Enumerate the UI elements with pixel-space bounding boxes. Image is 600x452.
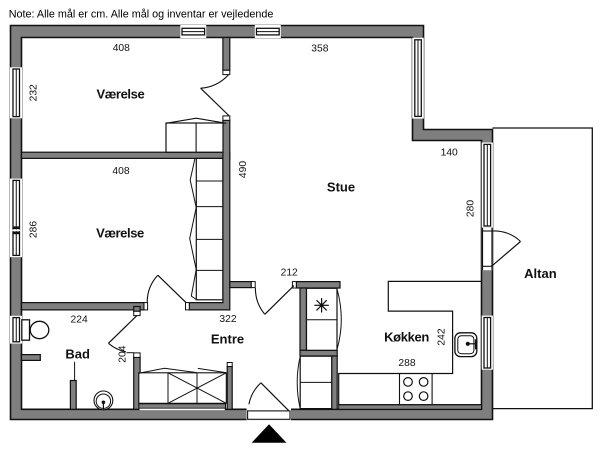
svg-text:224: 224 xyxy=(71,314,88,325)
svg-text:280: 280 xyxy=(465,200,476,217)
svg-text:Altan: Altan xyxy=(524,266,557,281)
svg-text:Værelse: Værelse xyxy=(97,86,145,101)
svg-text:286: 286 xyxy=(29,221,40,238)
svg-text:242: 242 xyxy=(436,328,447,345)
svg-text:Køkken: Køkken xyxy=(384,330,429,345)
svg-text:212: 212 xyxy=(281,268,298,279)
svg-text:Note: Alle mål er cm. Alle mål: Note: Alle mål er cm. Alle mål og invent… xyxy=(9,8,274,20)
svg-text:288: 288 xyxy=(398,358,415,369)
svg-text:Værelse: Værelse xyxy=(96,226,144,241)
svg-text:408: 408 xyxy=(112,166,129,177)
svg-text:Bad: Bad xyxy=(65,347,90,362)
svg-text:232: 232 xyxy=(29,84,40,101)
svg-text:140: 140 xyxy=(441,148,458,159)
svg-text:Stue: Stue xyxy=(327,179,355,194)
svg-text:490: 490 xyxy=(238,161,249,178)
svg-text:322: 322 xyxy=(219,314,236,325)
svg-text:204: 204 xyxy=(117,345,128,362)
svg-text:Entre: Entre xyxy=(211,332,244,347)
svg-text:358: 358 xyxy=(311,44,328,55)
svg-text:408: 408 xyxy=(113,43,130,54)
